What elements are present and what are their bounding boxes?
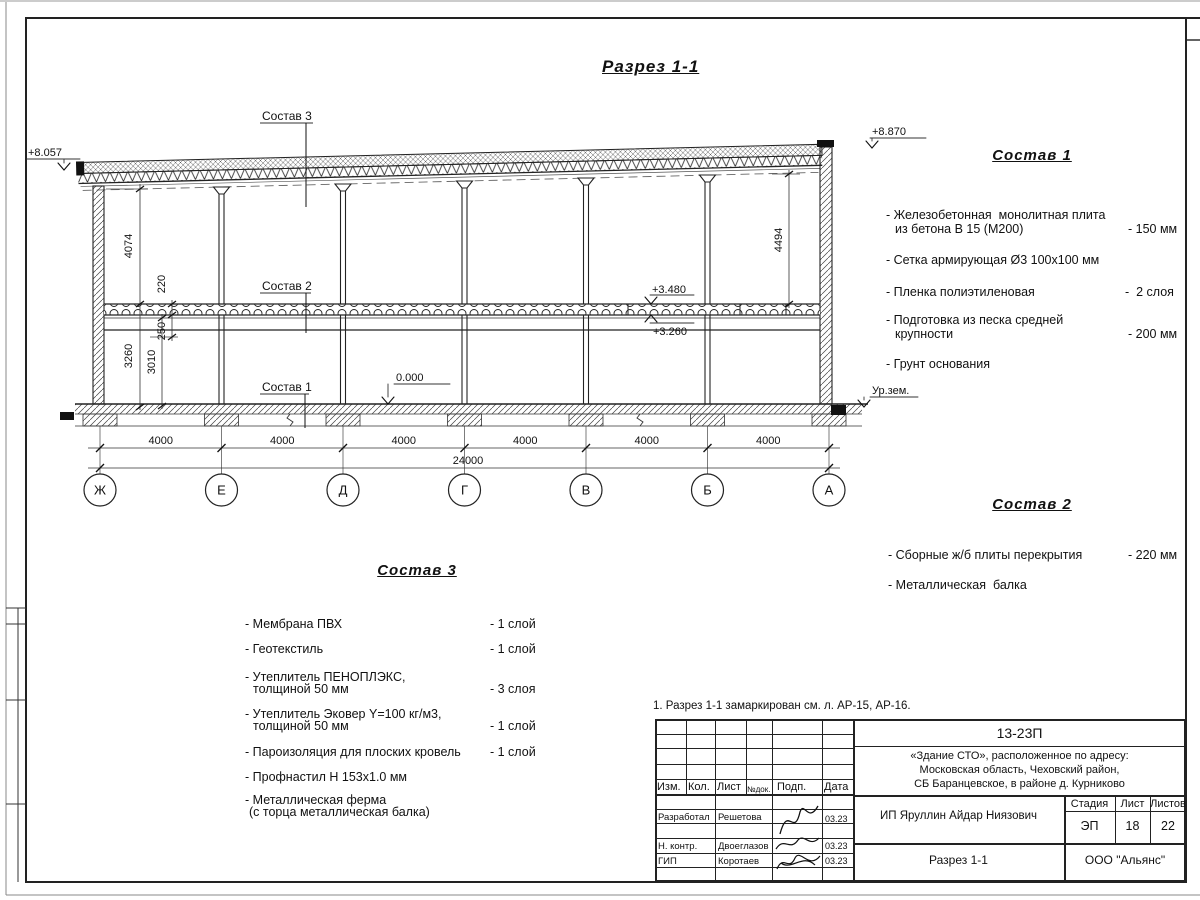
tb-name-dvoeglazov: Двоеглазов: [718, 841, 769, 852]
elev-ground-text: Ур.зем.: [872, 385, 909, 397]
tb-date-3: 03.23: [825, 856, 848, 866]
elev-zero: 0.000: [382, 372, 450, 404]
tb-col-podp: Подп.: [777, 781, 806, 793]
dimension-lines-left: 4074 3260 3010 220 250: [106, 184, 178, 410]
elev-top-left: +8.057: [27, 147, 80, 170]
elev-slab-bottom: +3.260: [645, 315, 694, 338]
tb-sheets-label: Листов: [1150, 798, 1186, 810]
dim-bay-5: 4000: [635, 435, 659, 447]
callout-sostav2: Состав 2: [262, 279, 312, 293]
list-item: - Пленка полиэтиленовая: [886, 285, 1035, 299]
tb-role-gip: ГИП: [658, 856, 677, 867]
axis-label-b: Б: [703, 483, 712, 498]
axis-label-e: Е: [217, 483, 226, 498]
list-item: - Геотекстиль: [245, 642, 323, 656]
drawing-note: 1. Разрез 1-1 замаркирован см. л. АР-15,…: [653, 700, 911, 712]
list-item: толщиной 50 мм: [253, 719, 349, 733]
dim-bay-4: 4000: [513, 435, 537, 447]
dim-3010: 3010: [146, 350, 158, 374]
ground-slab: [60, 404, 868, 426]
elev-slab-bottom-text: +3.260: [653, 326, 687, 338]
tb-address-line2: Московская область, Чеховский район,: [853, 764, 1186, 776]
dim-total: 24000: [453, 455, 484, 467]
sostav1-block: Состав 1 - Железобетонная монолитная пли…: [880, 147, 1184, 382]
list-item-value: - 2 слоя: [1125, 285, 1174, 299]
elev-top-right: +8.870: [866, 126, 926, 148]
list-item-value: - 1 слой: [490, 642, 536, 656]
elev-top-right-text: +8.870: [872, 126, 906, 138]
dim-4074: 4074: [123, 234, 135, 258]
tb-col-ndok: №док.: [747, 785, 770, 794]
callout-sostav3: Состав 3: [262, 109, 312, 123]
dimension-lines-bottom: 4000 4000 4000 4000 4000 4000 24000: [88, 426, 840, 474]
sostav2-title: Состав 2: [880, 496, 1184, 513]
tb-date-1: 03.23: [825, 814, 848, 824]
elev-ground: Ур.зем.: [858, 385, 918, 407]
list-item: - Мембрана ПВХ: [245, 617, 342, 631]
list-item: - Железобетонная монолитная плита: [886, 208, 1105, 222]
tb-col-izm: Изм.: [657, 781, 681, 793]
sostav3-title: Состав 3: [267, 562, 567, 579]
dimension-line-right: 4494: [772, 170, 800, 308]
tb-doc-number: 13-23П: [853, 725, 1186, 741]
axis-markers: Ж Е Д Г В Б А: [84, 474, 845, 506]
tb-role-razrabotal: Разработал: [658, 812, 710, 823]
list-item-value: - 1 слой: [490, 745, 536, 759]
tb-date-2: 03.23: [825, 841, 848, 851]
dim-250: 250: [156, 322, 168, 340]
axis-label-d: Д: [339, 483, 348, 498]
tb-name-korotaev: Коротаев: [718, 856, 759, 867]
title-block: Изм. Кол. Лист №док. Подп. Дата Разработ…: [655, 719, 1186, 882]
list-item: - Пароизоляция для плоских кровель: [245, 745, 461, 759]
tb-col-list: Лист: [717, 781, 741, 793]
tb-col-data: Дата: [824, 781, 848, 793]
list-item-value: - 3 слоя: [490, 682, 535, 696]
tb-role-nkontr: Н. контр.: [658, 841, 697, 852]
tb-address-line1: «Здание СТО», расположенное по адресу:: [853, 750, 1186, 762]
list-item: - Подготовка из песка средней: [886, 313, 1063, 327]
tb-col-kol: Кол.: [688, 781, 710, 793]
list-item: - Профнастил Н 153х1.0 мм: [245, 770, 407, 784]
list-item: толщиной 50 мм: [253, 682, 349, 696]
drawing-sheet: 4000 4000 4000 4000 4000 4000 24000 Ж Е …: [0, 0, 1200, 900]
list-item: крупности: [895, 327, 953, 341]
elev-top-left-text: +8.057: [28, 147, 62, 159]
dim-bay-2: 4000: [270, 435, 294, 447]
list-item-value: - 220 мм: [1128, 548, 1177, 562]
elev-slab-top-text: +3.480: [652, 284, 686, 296]
tb-name-reshetova: Решетова: [718, 812, 762, 823]
list-item: - Грунт основания: [886, 357, 990, 371]
tb-client: ИП Яруллин Айдар Ниязович: [853, 810, 1064, 822]
elev-slab-top: +3.480: [645, 284, 694, 304]
list-item-value: - 150 мм: [1128, 222, 1177, 236]
tb-sheets-value: 22: [1150, 819, 1186, 833]
list-item: - Металлическая балка: [888, 578, 1027, 592]
sostav3-block: Состав 3 - Мембрана ПВХ - 1 слой - Геоте…: [245, 560, 545, 830]
list-item-value: - 1 слой: [490, 719, 536, 733]
dim-4494: 4494: [773, 228, 785, 252]
tb-org: ООО "Альянс": [1064, 853, 1186, 867]
callout-sostav1: Состав 1: [262, 380, 312, 394]
sostav2-block: Состав 2 - Сборные ж/б плиты перекрытия …: [880, 496, 1184, 596]
list-item-value: - 200 мм: [1128, 327, 1177, 341]
dim-bay-1: 4000: [149, 435, 173, 447]
dim-bay-6: 4000: [756, 435, 780, 447]
dim-3260: 3260: [123, 344, 135, 368]
list-item: - Сетка армирующая Ø3 100х100 мм: [886, 253, 1099, 267]
list-item: (с торца металлическая балка): [249, 805, 430, 819]
sostav1-title: Состав 1: [880, 147, 1184, 164]
tb-sheet-label: Лист: [1115, 798, 1150, 810]
tb-sheet-value: 18: [1115, 819, 1150, 833]
axis-label-g: Г: [461, 483, 468, 498]
tb-stage-value: ЭП: [1064, 819, 1115, 833]
list-item: - Сборные ж/б плиты перекрытия: [888, 548, 1082, 562]
list-item-value: - 1 слой: [490, 617, 536, 631]
signature: [773, 849, 823, 875]
axis-label-zh: Ж: [94, 483, 106, 498]
axis-label-a: А: [825, 483, 834, 498]
tb-address-line3: СБ Баранцевское, в районе д. Курниково: [853, 778, 1186, 790]
side-stamp: [6, 608, 26, 882]
list-item: из бетона В 15 (М200): [895, 222, 1023, 236]
dim-220: 220: [156, 275, 168, 293]
tb-stage-label: Стадия: [1064, 798, 1115, 810]
page-title: Разрез 1-1: [602, 57, 699, 77]
tb-sheet-title: Разрез 1-1: [853, 853, 1064, 867]
axis-label-v: В: [582, 483, 591, 498]
elev-zero-text: 0.000: [396, 372, 424, 384]
dim-bay-3: 4000: [392, 435, 416, 447]
